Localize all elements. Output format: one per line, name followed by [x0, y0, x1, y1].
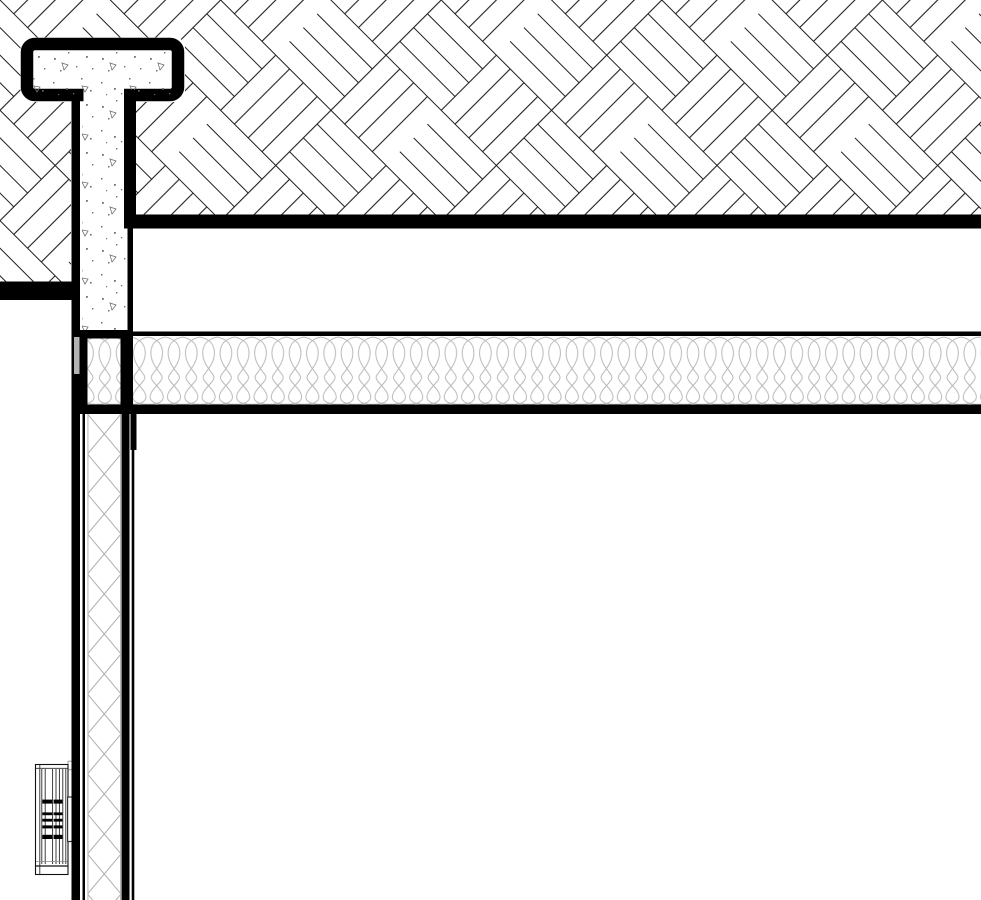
- wall-face-inner-thin-line: [83, 414, 86, 900]
- masonry-hatch-upper: [0, 0, 981, 215]
- masonry-hatch-left-column: [0, 215, 71, 282]
- wall-insulation-strip: [88, 414, 122, 900]
- masonry-ledge-band: [0, 282, 77, 301]
- batt-pattern-area: [88, 336, 981, 405]
- wall-face-outer-bar: [72, 96, 81, 900]
- membrane-strip: [74, 337, 80, 374]
- detail-drawing-canvas[interactable]: [0, 0, 981, 900]
- insulation-top-line: [133, 332, 981, 337]
- batt-insulation-band: [88, 336, 981, 405]
- tee-stem-right-line-lower: [128, 228, 134, 332]
- wall-inner-thick-bar: [122, 405, 130, 900]
- insulation-bottom-band: [80, 405, 981, 415]
- lattice-pattern-area: [88, 414, 122, 900]
- floor-slab-edge-band: [124, 215, 981, 229]
- tee-stem-right-bar-upper: [124, 90, 136, 229]
- insulation-separator-bar: [121, 336, 134, 405]
- wall-inner-thin-line: [132, 450, 135, 900]
- wall-inner-stub: [131, 411, 137, 450]
- insulation-left-connector: [80, 336, 88, 414]
